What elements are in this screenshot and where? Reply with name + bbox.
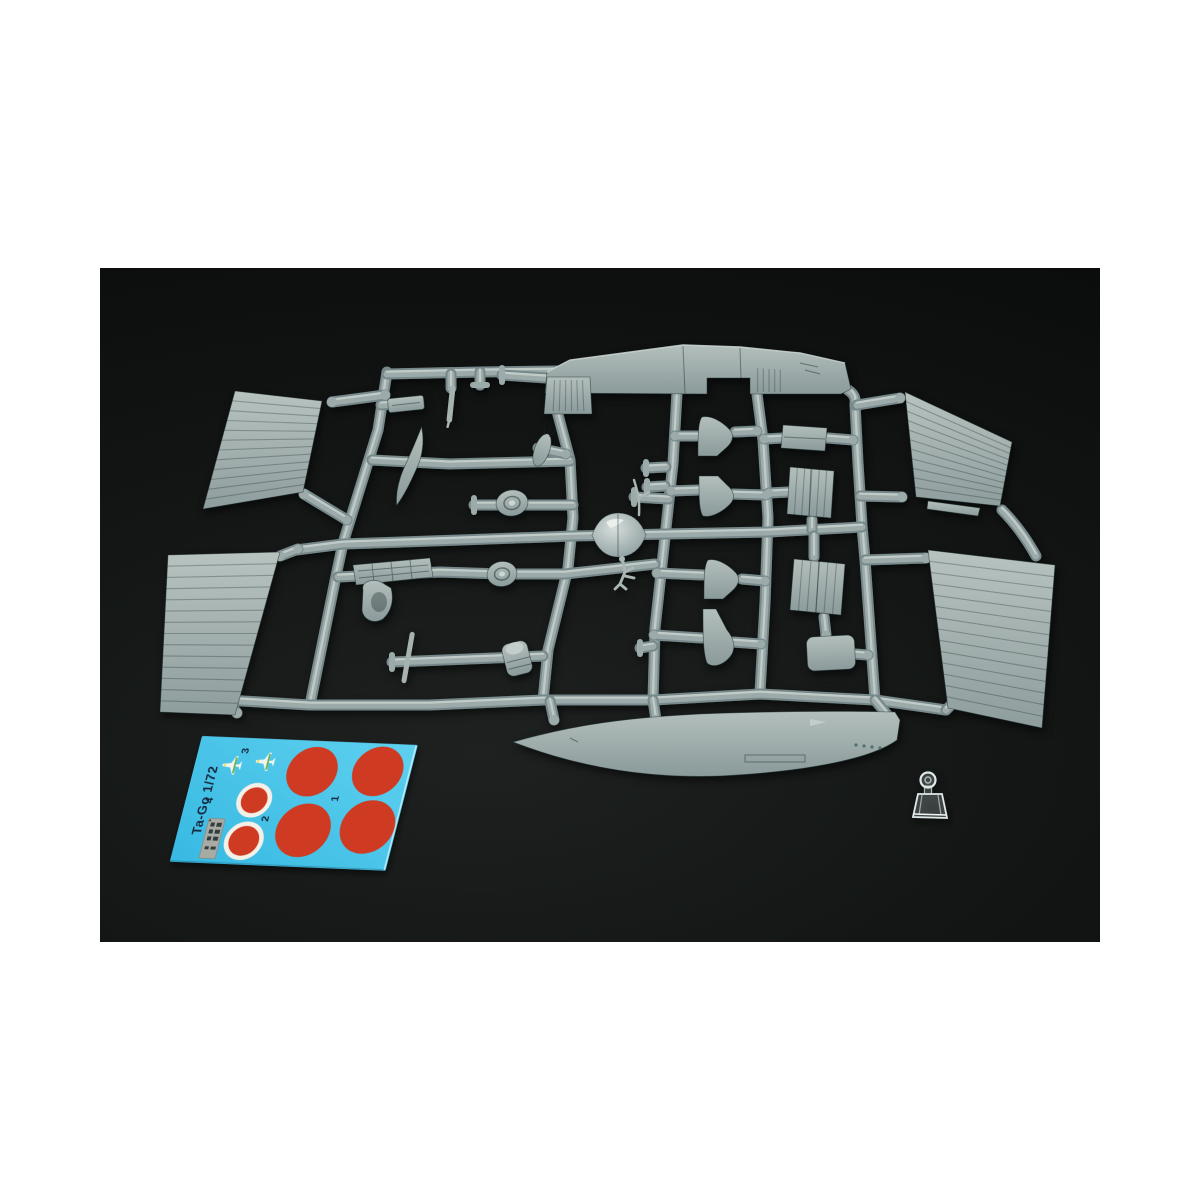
photo-area: 1 2 3 4 Ta-Go 1/72 [100,268,1100,942]
windscreen-clear-part [913,773,947,819]
decal-label-2: 2 [259,816,272,822]
main-wheel-2 [485,560,518,589]
decal-label-1: 1 [329,795,342,801]
tail-fins-and-stabilizers [698,417,739,666]
engine-mount-frame [353,558,433,585]
lower-fuselage-half [513,711,900,776]
upper-fuselage-half [544,345,851,414]
access-hatch [387,395,424,413]
left-wing-outer-panel-lower [160,552,280,715]
engine-drum [501,639,534,677]
sprue-frame [160,345,1055,776]
product-photo-page: 1 2 3 4 Ta-Go 1/72 [0,0,1200,1200]
right-wing-outer-panel-upper [905,392,1012,516]
decal-label-3: 3 [239,748,252,754]
main-wheel-1 [494,488,529,518]
sprue-photo-svg: 1 2 3 4 Ta-Go 1/72 [100,268,1100,942]
pilot-seat [362,580,392,621]
right-wing-outer-panel-lower [928,550,1055,728]
propeller-spinner [592,513,646,557]
decal-sheet: 1 2 3 4 Ta-Go 1/72 [170,736,418,871]
